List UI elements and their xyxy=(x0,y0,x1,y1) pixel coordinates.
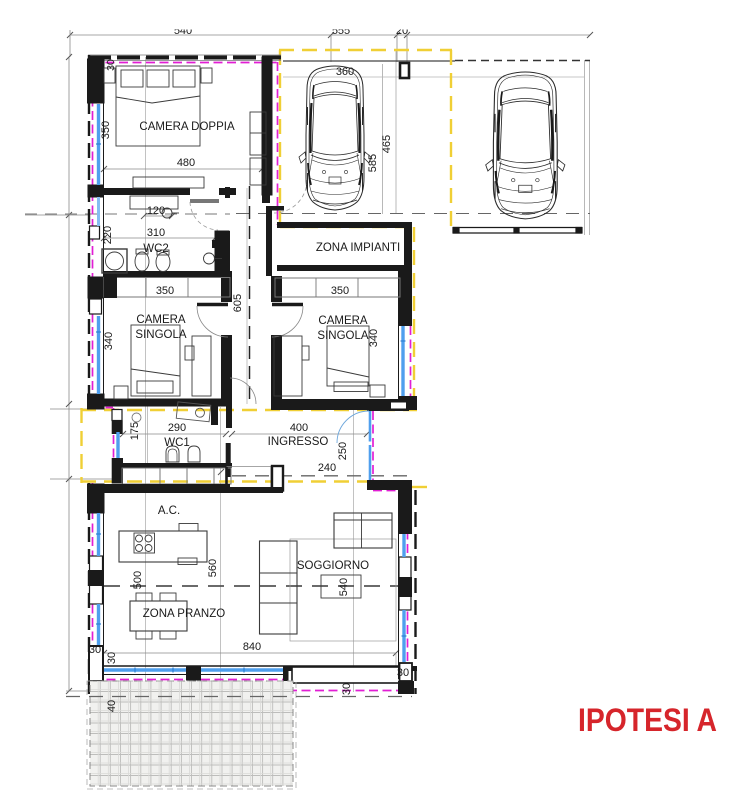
svg-text:310: 310 xyxy=(147,227,165,239)
svg-text:480: 480 xyxy=(177,157,195,169)
svg-text:SINGOLA: SINGOLA xyxy=(317,330,368,342)
svg-text:560: 560 xyxy=(207,559,219,577)
svg-text:350: 350 xyxy=(100,121,112,139)
svg-text:SOGGIORNO: SOGGIORNO xyxy=(297,560,369,572)
svg-text:240: 240 xyxy=(318,462,336,474)
svg-text:340: 340 xyxy=(103,332,115,350)
svg-text:350: 350 xyxy=(331,285,349,297)
svg-text:220: 220 xyxy=(102,226,114,244)
svg-text:IPOTESI A: IPOTESI A xyxy=(578,702,717,738)
svg-text:30: 30 xyxy=(397,667,409,679)
svg-text:175: 175 xyxy=(129,422,141,440)
svg-text:585: 585 xyxy=(367,154,379,172)
svg-text:30: 30 xyxy=(105,59,117,71)
svg-text:WC1: WC1 xyxy=(164,437,190,449)
svg-text:CAMERA DOPPIA: CAMERA DOPPIA xyxy=(139,121,235,133)
svg-text:ZONA PRANZO: ZONA PRANZO xyxy=(143,608,225,620)
svg-text:ZONA IMPIANTI: ZONA IMPIANTI xyxy=(316,242,400,254)
svg-text:350: 350 xyxy=(156,285,174,297)
svg-text:WC2: WC2 xyxy=(143,243,169,255)
svg-text:30: 30 xyxy=(106,652,118,664)
svg-text:500: 500 xyxy=(132,571,144,589)
svg-text:540: 540 xyxy=(338,578,350,596)
svg-text:CAMERA: CAMERA xyxy=(318,315,368,327)
svg-text:465: 465 xyxy=(381,135,393,153)
svg-text:840: 840 xyxy=(243,641,261,653)
svg-text:40: 40 xyxy=(106,700,118,712)
svg-text:605: 605 xyxy=(232,294,244,312)
svg-text:30: 30 xyxy=(341,683,353,695)
svg-text:120: 120 xyxy=(147,205,165,217)
svg-text:250: 250 xyxy=(337,442,349,460)
svg-text:A.C.: A.C. xyxy=(158,505,180,517)
svg-text:SINGOLA: SINGOLA xyxy=(135,329,186,341)
svg-text:290: 290 xyxy=(168,422,186,434)
svg-text:30: 30 xyxy=(89,644,101,656)
svg-text:CAMERA: CAMERA xyxy=(136,314,186,326)
svg-text:INGRESSO: INGRESSO xyxy=(268,436,329,448)
svg-text:340: 340 xyxy=(368,329,380,347)
svg-text:400: 400 xyxy=(290,422,308,434)
